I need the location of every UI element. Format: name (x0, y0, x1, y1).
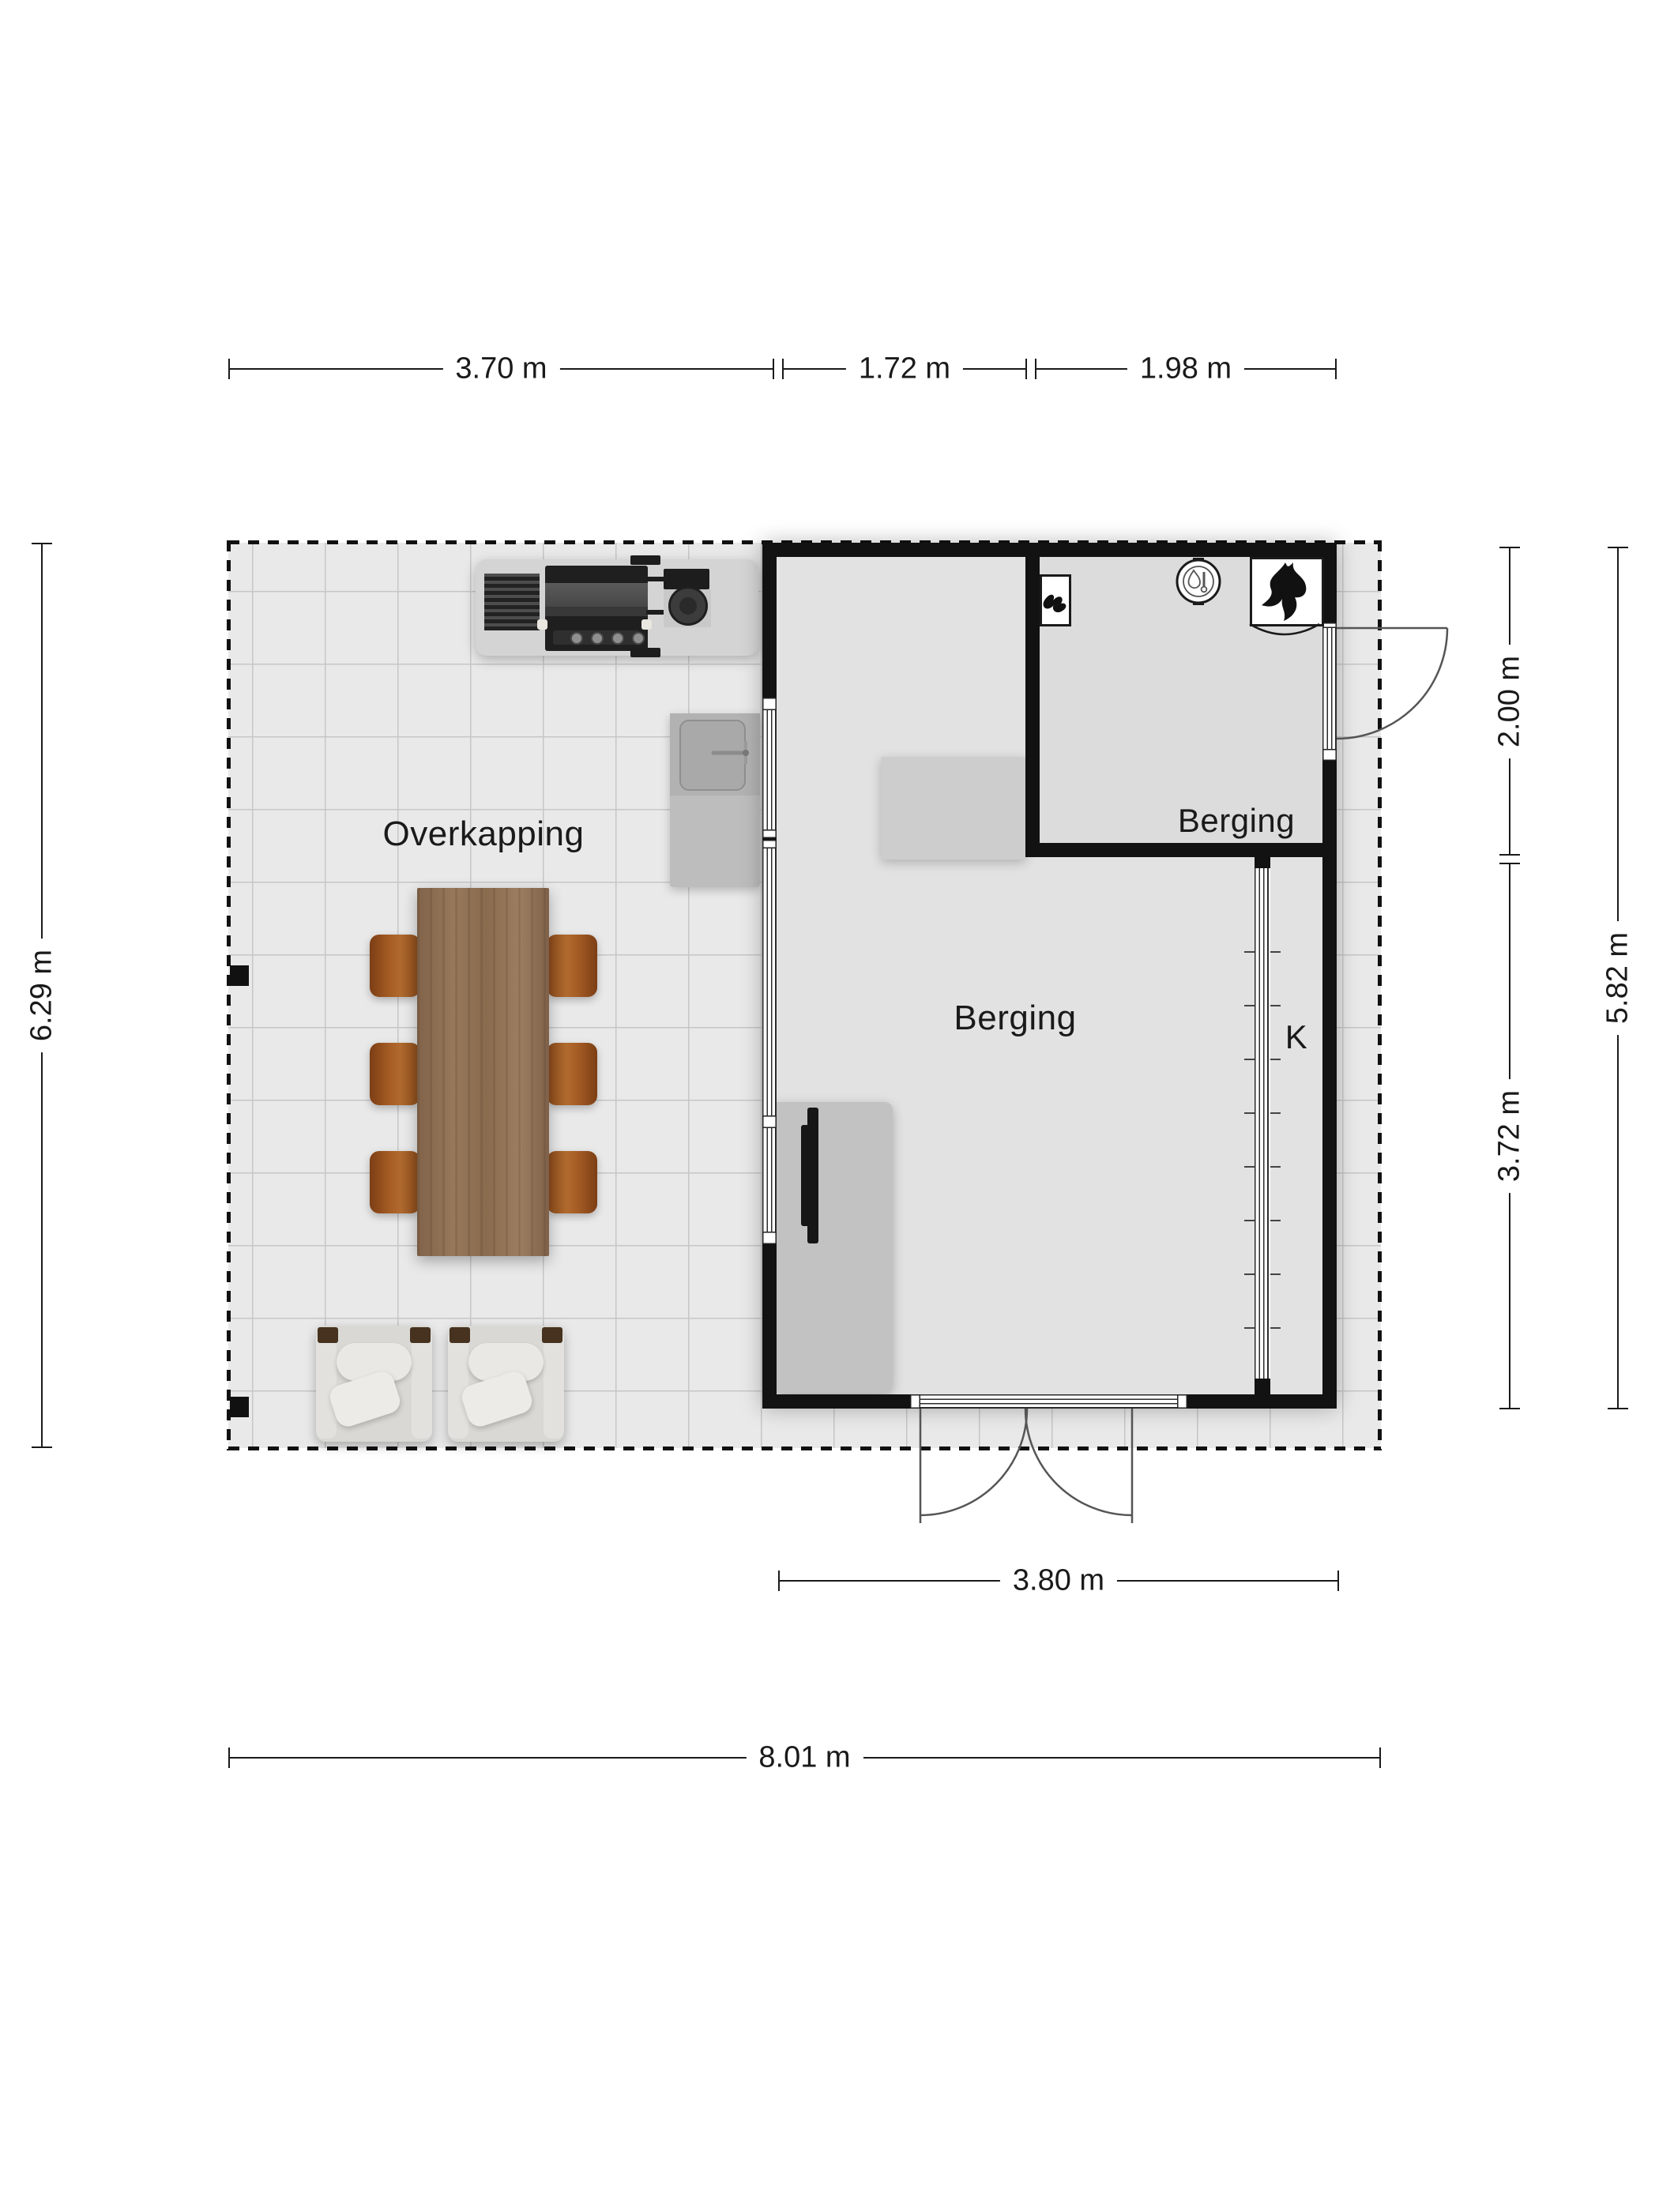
window-cap (762, 840, 777, 848)
side-burner-center (679, 597, 697, 615)
dimension-top-2: 1.72 m (782, 351, 1027, 387)
wood-frame (450, 1327, 470, 1343)
dimension-right-2: 3.72 m (1492, 863, 1528, 1409)
grill-link-bar (646, 577, 665, 581)
grill-lid (545, 583, 648, 607)
storage-cabinet (777, 1102, 893, 1393)
sink-basin (679, 720, 746, 791)
door-cap (1177, 1394, 1187, 1409)
grill-knob (632, 632, 645, 645)
room-label-closet: K (1285, 1018, 1308, 1056)
grill-link-bar (646, 610, 665, 615)
dimension-total-width: 8.01 m (228, 1740, 1381, 1776)
window-cap (762, 829, 777, 838)
grill-side-shelf (484, 574, 540, 630)
roof-outline-right (1378, 540, 1382, 1450)
dimension-label: 2.00 m (1490, 644, 1530, 758)
dining-chair (547, 935, 597, 997)
water-tap-box (1040, 574, 1071, 626)
roof-post (230, 1397, 249, 1417)
dimension-label: 1.72 m (846, 349, 963, 389)
armrest (544, 1332, 564, 1439)
wood-frame (410, 1327, 431, 1343)
armrest (448, 1332, 468, 1439)
seat-cushion (327, 1368, 404, 1429)
door-cap (1322, 749, 1337, 761)
dimension-left: 6.29 m (24, 543, 60, 1448)
glazed-door (1322, 628, 1337, 749)
dimension-door: 3.80 m (778, 1563, 1339, 1599)
dimension-right-3: 5.82 m (1600, 547, 1636, 1409)
ladder-cap (1255, 857, 1270, 868)
floor-plan-canvas: Overkapping Berging Berging K 3.70 m 1.7… (0, 0, 1659, 2212)
dimension-right-1: 2.00 m (1492, 547, 1528, 856)
grill-knob (611, 632, 624, 645)
dimension-label: 6.29 m (22, 939, 62, 1052)
dimension-top-1: 3.70 m (228, 351, 774, 387)
dimension-label: 3.72 m (1490, 1079, 1530, 1193)
window (762, 710, 777, 829)
grill-band (545, 607, 648, 616)
dimension-top-3: 1.98 m (1035, 351, 1337, 387)
dining-chair (370, 1043, 420, 1105)
grill-bottom-handle (630, 648, 660, 657)
workbench (881, 757, 1025, 860)
grill-hinge (641, 619, 652, 630)
window-cap (762, 698, 777, 710)
lounge-chair (448, 1326, 564, 1442)
dining-chair (370, 1151, 420, 1213)
room-label-overkapping: Overkapping (383, 814, 585, 854)
wood-frame (542, 1327, 562, 1343)
lounge-chair (316, 1326, 432, 1442)
room-label-berging-main: Berging (954, 999, 1076, 1038)
window-cap (762, 1232, 777, 1244)
grill-top-handle (630, 555, 660, 565)
wood-frame (318, 1327, 338, 1343)
dining-table (417, 888, 549, 1256)
wall-shed2-bottom (1025, 843, 1337, 857)
roof-post (230, 965, 249, 986)
dining-chair (547, 1151, 597, 1213)
glazed-double-door (920, 1394, 1177, 1409)
window-cap (762, 1115, 777, 1128)
door-cap (1322, 623, 1337, 628)
dimension-label: 3.80 m (1000, 1561, 1117, 1601)
room-label-berging-top: Berging (1178, 802, 1295, 840)
armrest (412, 1332, 432, 1439)
dining-chair (370, 935, 420, 997)
wall-tv-screen (801, 1125, 818, 1226)
ladder (1255, 868, 1270, 1379)
wall-shed2-left (1025, 543, 1040, 857)
window (762, 1128, 777, 1232)
grill-knob (591, 632, 604, 645)
armrest (316, 1332, 337, 1439)
window (762, 848, 777, 1115)
ladder-cap (1255, 1379, 1270, 1394)
seat-cushion (459, 1368, 536, 1429)
dimension-label: 1.98 m (1127, 349, 1244, 389)
dining-chair (547, 1043, 597, 1105)
dimension-label: 3.70 m (442, 349, 559, 389)
dimension-label: 8.01 m (746, 1738, 863, 1778)
wall-top (762, 543, 1337, 557)
heater-box (1250, 557, 1324, 626)
grill-hinge (537, 619, 547, 630)
dimension-label: 5.82 m (1598, 921, 1638, 1035)
roof-outline-bottom (228, 1446, 1381, 1450)
door-cap (910, 1394, 920, 1409)
roof-outline-left (227, 540, 231, 1450)
grill-knob (570, 632, 583, 645)
